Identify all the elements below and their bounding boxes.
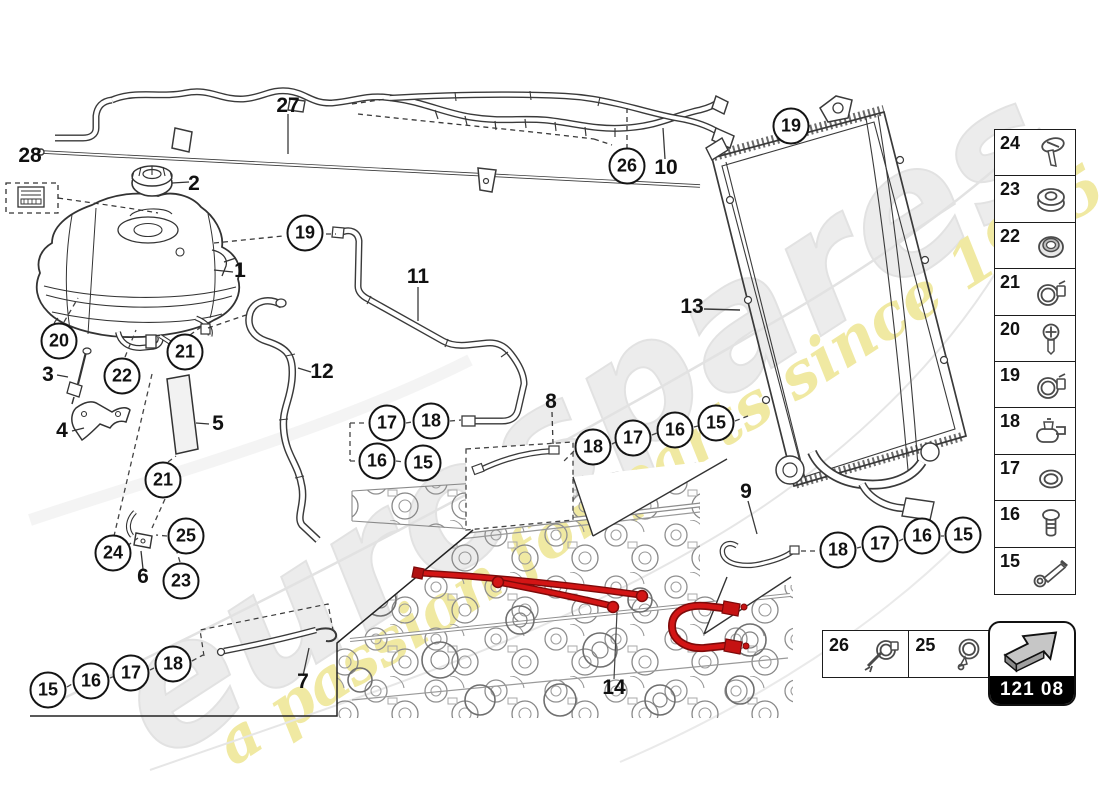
callout-7[interactable]: 7	[297, 670, 309, 694]
part-number: 25	[915, 635, 935, 656]
sidebar-part-15[interactable]: 15	[994, 547, 1076, 595]
sidebar-part-22[interactable]: 22	[994, 222, 1076, 270]
clamp-with-tool-icon	[859, 634, 905, 676]
part-number: 23	[1000, 179, 1020, 200]
part-number: 26	[829, 635, 849, 656]
callout-24[interactable]: 24	[95, 535, 132, 572]
screw-large-icon	[1029, 134, 1073, 174]
part-number: 24	[1000, 133, 1020, 154]
callout-17[interactable]: 17	[615, 420, 652, 457]
sidebar-part-20[interactable]: 20	[994, 315, 1076, 363]
part-number: 21	[1000, 272, 1020, 293]
callout-16[interactable]: 16	[73, 663, 110, 700]
callout-4[interactable]: 4	[56, 419, 68, 443]
part-number: 16	[1000, 504, 1020, 525]
callout-21[interactable]: 21	[167, 334, 204, 371]
callout-10[interactable]: 10	[654, 156, 677, 180]
grommet-icon	[1029, 227, 1073, 267]
sidebar-part-18[interactable]: 18	[994, 407, 1076, 455]
callout-1[interactable]: 1	[234, 259, 246, 283]
callout-17[interactable]: 17	[113, 655, 150, 692]
callout-25[interactable]: 25	[168, 518, 205, 555]
callout-27[interactable]: 27	[276, 94, 299, 118]
callout-26[interactable]: 26	[609, 148, 646, 185]
pan-screw-icon	[1029, 320, 1073, 360]
callout-16[interactable]: 16	[657, 412, 694, 449]
sidebar-part-17[interactable]: 17	[994, 454, 1076, 502]
callout-19[interactable]: 19	[287, 215, 324, 252]
callout-8[interactable]: 8	[545, 390, 557, 414]
sidebar-part-23[interactable]: 23	[994, 175, 1076, 223]
sidebar-part-16[interactable]: 16	[994, 500, 1076, 548]
callout-17[interactable]: 17	[862, 526, 899, 563]
callout-22[interactable]: 22	[104, 358, 141, 395]
mount-clip-icon	[1029, 412, 1073, 452]
callout-21[interactable]: 21	[145, 462, 182, 499]
callout-15[interactable]: 15	[30, 672, 67, 709]
legend-part-26[interactable]: 26	[822, 630, 910, 678]
part-number: 22	[1000, 226, 1020, 247]
legend-part-25[interactable]: 25	[908, 630, 996, 678]
callout-13[interactable]: 13	[680, 295, 703, 319]
callout-28[interactable]: 28	[18, 144, 41, 168]
callout-15[interactable]: 15	[945, 517, 982, 554]
callout-18[interactable]: 18	[575, 429, 612, 466]
o-ring-icon	[1029, 459, 1073, 499]
callout-23[interactable]: 23	[163, 563, 200, 600]
part-number: 15	[1000, 551, 1020, 572]
callout-15[interactable]: 15	[405, 445, 442, 482]
clamp-legend: 2625	[822, 630, 996, 678]
section-code: 121 08	[990, 676, 1074, 704]
callout-9[interactable]: 9	[740, 480, 752, 504]
sidebar-part-24[interactable]: 24	[994, 129, 1076, 177]
callout-6[interactable]: 6	[137, 565, 149, 589]
callout-14[interactable]: 14	[602, 676, 625, 700]
callout-18[interactable]: 18	[413, 403, 450, 440]
part-number: 17	[1000, 458, 1020, 479]
flange-nut-icon	[1029, 180, 1073, 220]
sidebar-part-21[interactable]: 21	[994, 268, 1076, 316]
callout-16[interactable]: 16	[904, 518, 941, 555]
callout-18[interactable]: 18	[155, 646, 192, 683]
callout-18[interactable]: 18	[820, 532, 857, 569]
callout-3[interactable]: 3	[42, 363, 54, 387]
bolt-icon	[1029, 505, 1073, 545]
arrow-icon	[990, 623, 1073, 675]
part-number: 18	[1000, 411, 1020, 432]
callout-12[interactable]: 12	[310, 360, 333, 384]
callout-17[interactable]: 17	[369, 405, 406, 442]
callout-5[interactable]: 5	[212, 412, 224, 436]
callout-19[interactable]: 19	[773, 108, 810, 145]
parts-sidebar: 24232221201918171615	[994, 129, 1076, 595]
callout-11[interactable]: 11	[407, 265, 429, 289]
parts-diagram-canvas: eurospares a passion for parts since 198…	[0, 0, 1100, 800]
callout-20[interactable]: 20	[41, 323, 78, 360]
callout-2[interactable]: 2	[188, 172, 200, 196]
callout-16[interactable]: 16	[359, 443, 396, 480]
sidebar-part-19[interactable]: 19	[994, 361, 1076, 409]
section-badge[interactable]: 121 08	[988, 621, 1076, 706]
hose-clamp-icon	[1029, 366, 1073, 406]
part-number: 19	[1000, 365, 1020, 386]
drain-plug-icon	[1029, 552, 1073, 592]
callout-15[interactable]: 15	[698, 405, 735, 442]
hose-clamp-icon	[1029, 273, 1073, 313]
part-number: 20	[1000, 319, 1020, 340]
callout-layer: 2728211011131235489671419261920212221171…	[0, 0, 1100, 800]
ring-clamp-icon	[945, 634, 991, 676]
